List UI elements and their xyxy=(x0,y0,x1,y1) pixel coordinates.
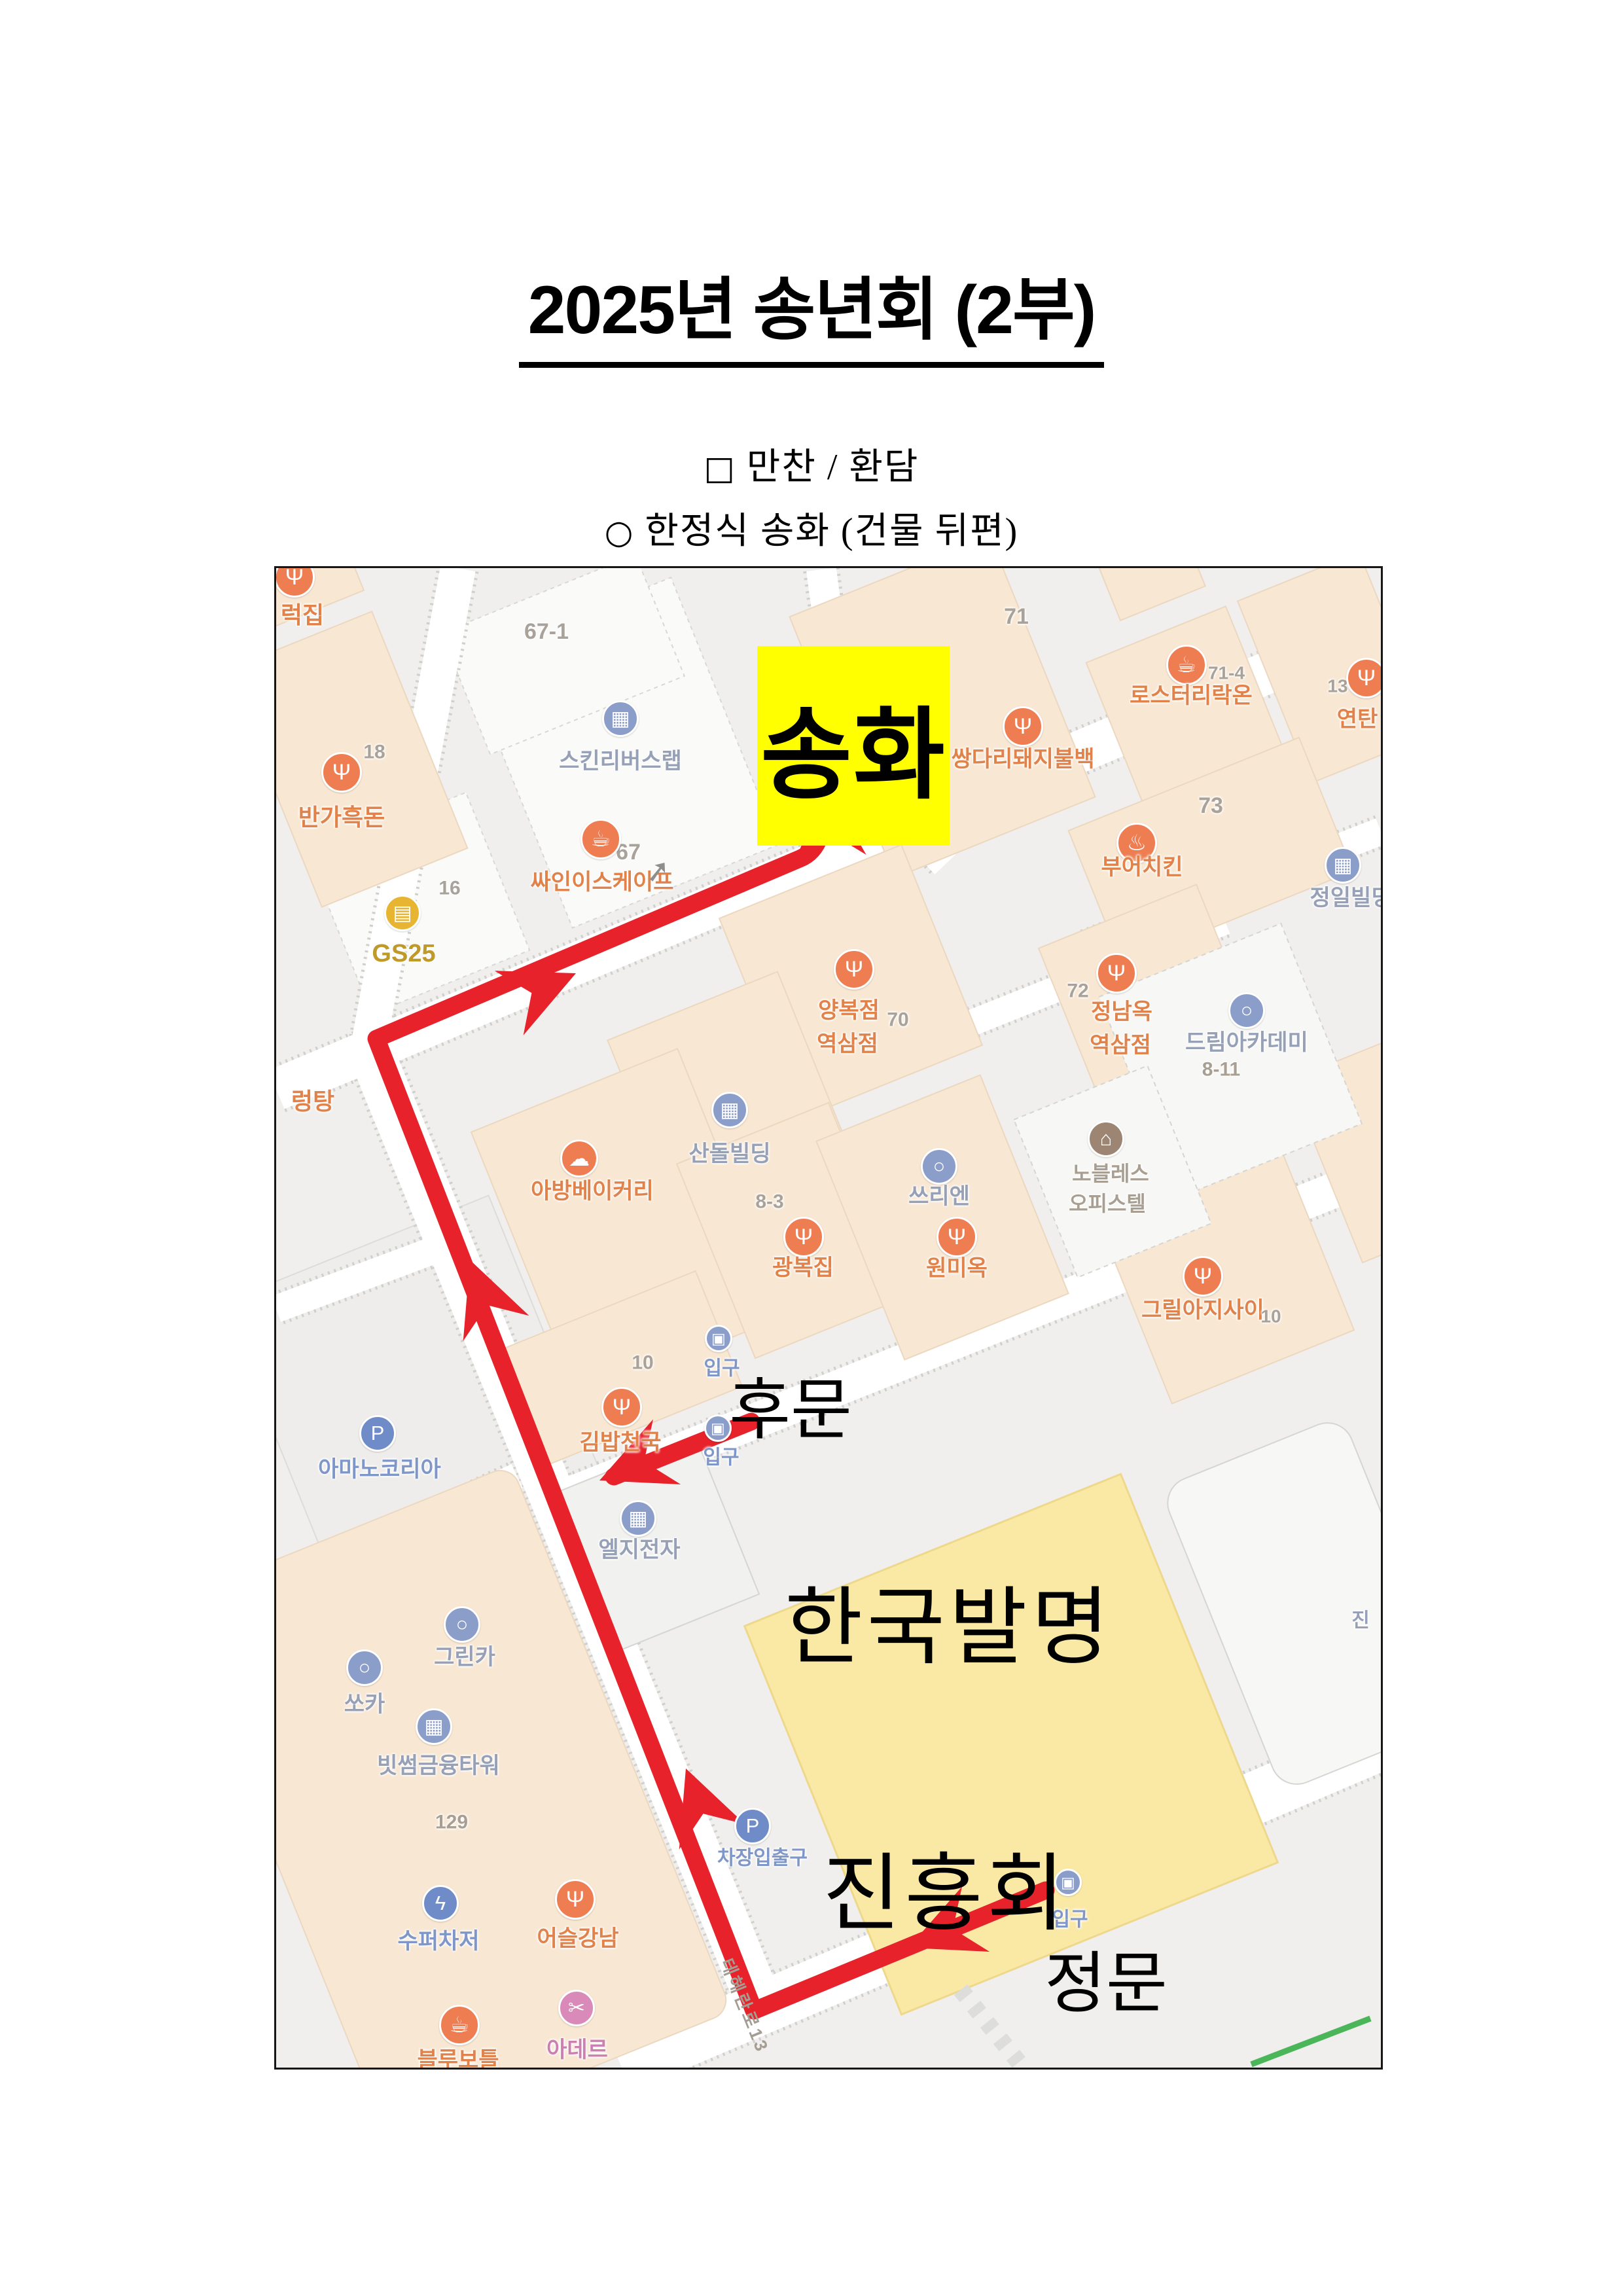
map-poi-label: 정일빌딩 xyxy=(1310,887,1383,910)
map-poi-label: 그린카 xyxy=(434,1646,495,1670)
bullet-line-dinner: □ 만찬 / 환담 xyxy=(0,437,1623,490)
district-green-line xyxy=(1251,2018,1370,2064)
map-poi-label: 로스터리락온 xyxy=(1130,685,1253,708)
map-poi-label: 67-1 xyxy=(524,620,569,644)
bldg-icon: ▦ xyxy=(416,1708,452,1745)
map-poi-label: 김밥천국 xyxy=(579,1431,661,1455)
page-header: 2025년 송년회 (2부) xyxy=(0,254,1623,368)
map-poi-label: 역삼점 xyxy=(1090,1034,1151,1058)
circle-bullet-icon: ○ xyxy=(605,513,635,551)
map-poi-label: 어슬강남 xyxy=(537,1928,618,1951)
restaurant-icon: Ψ xyxy=(834,949,874,990)
page-title: 2025년 송년회 (2부) xyxy=(519,254,1105,368)
map-poi-label: 양복점 xyxy=(818,999,880,1023)
map-poi-label: 연탄 xyxy=(1337,708,1378,732)
basket-icon: ▤ xyxy=(384,895,421,931)
door-icon: ▣ xyxy=(705,1325,732,1352)
map-poi-label: 13 xyxy=(1327,676,1347,695)
map-poi-label: 반가흑돈 xyxy=(298,805,385,830)
map-poi-label: 블루보틀 xyxy=(417,2049,499,2070)
cloud-icon: ☁ xyxy=(560,1139,598,1177)
map-poi-label: 부어치킨 xyxy=(1101,856,1183,880)
restaurant-icon: Ψ xyxy=(936,1217,977,1257)
cafe-icon: ☕ xyxy=(580,819,621,859)
map-poi-label: 아데르 xyxy=(546,2039,608,2062)
map-poi-label: 71-4 xyxy=(1208,663,1245,682)
restaurant-icon: Ψ xyxy=(1183,1256,1223,1297)
bldg-icon: ▦ xyxy=(1325,847,1361,884)
destination-highlight-box: 송화 xyxy=(757,646,950,846)
donut-icon: ○ xyxy=(1228,992,1265,1029)
scissors-icon: ✂ xyxy=(558,1990,595,2026)
map-poi-label: 산돌빌딩 xyxy=(688,1143,770,1166)
map-poi-label: 쌍다리돼지불백 xyxy=(952,748,1095,772)
map-poi-label: 역삼점 xyxy=(817,1033,878,1056)
map-poi-label: 70 xyxy=(887,1009,908,1030)
door-icon: ▣ xyxy=(704,1414,732,1442)
cafe-icon: ☕ xyxy=(1166,645,1207,685)
map-poi-label: 그릴아지사이 xyxy=(1141,1299,1264,1323)
map-poi-label: 정남옥 xyxy=(1091,1001,1152,1024)
donut-icon: ○ xyxy=(346,1649,383,1686)
map-poi-label: 73 xyxy=(1198,795,1223,818)
map-poi-label: 71 xyxy=(1004,605,1029,629)
map-poi-label: 드림아카데미 xyxy=(1185,1031,1308,1055)
route-map-image: Ψ럭집67-1▦스킨리버스랩18Ψ반가흑돈6771Ψ쌍다리돼지불백☕로스터리락온… xyxy=(274,566,1383,2070)
destination-label: 송화 xyxy=(760,674,946,818)
bullet-line-restaurant: ○ 한정식 송화 (건물 뒤편) xyxy=(0,501,1623,554)
parking-icon: P xyxy=(359,1415,396,1452)
donut-icon: ○ xyxy=(444,1606,480,1643)
square-bullet-icon: □ xyxy=(704,449,736,487)
map-poi-label: 노블레스 xyxy=(1072,1163,1149,1185)
map-poi-label: 오피스텔 xyxy=(1069,1193,1146,1215)
kipa-building-label-line2: 진흥회 xyxy=(823,1825,1069,1948)
map-poi-label: 18 xyxy=(363,742,385,762)
map-poi-label: 아방베이커리 xyxy=(531,1180,654,1204)
cafe-icon: ☕ xyxy=(439,2005,480,2045)
map-poi-label: 8-3 xyxy=(755,1191,783,1212)
map-poi-label: GS25 xyxy=(372,941,435,967)
map-poi-label: 10 xyxy=(1260,1306,1281,1325)
restaurant-icon: Ψ xyxy=(1003,706,1043,747)
map-poi-label: 럭집 xyxy=(281,603,324,628)
map-poi-label: 72 xyxy=(1067,980,1088,1001)
map-poi-label: 엘지전자 xyxy=(598,1539,680,1562)
restaurant-icon: Ψ xyxy=(1346,658,1383,698)
restaurant-icon: Ψ xyxy=(1096,953,1137,994)
bullet-text: 한정식 송화 (건물 뒤편) xyxy=(645,511,1018,552)
restaurant-icon: Ψ xyxy=(601,1387,642,1427)
map-poi-label: 10 xyxy=(632,1352,653,1373)
crosswalk-dashes xyxy=(961,1990,1021,2065)
restaurant-icon: Ψ xyxy=(555,1879,596,1920)
map-poi-label: 광복집 xyxy=(772,1257,834,1280)
map-poi-label: 렁탕 xyxy=(291,1089,334,1114)
map-poi-label: 쓰리엔 xyxy=(908,1185,970,1209)
parking-icon: P xyxy=(734,1808,771,1844)
map-poi-label: 쏘카 xyxy=(344,1693,385,1717)
map-poi-label: 진 xyxy=(1351,1610,1370,1631)
restaurant-icon: Ψ xyxy=(321,752,362,793)
map-poi-label: 스킨리버스랩 xyxy=(559,750,682,774)
map-poi-label: 129 xyxy=(435,1812,468,1833)
bldg-icon: ▦ xyxy=(620,1500,656,1537)
house-icon: ⌂ xyxy=(1088,1121,1124,1157)
bldg-icon: ▦ xyxy=(602,700,639,737)
restaurant-icon: Ψ xyxy=(783,1217,824,1257)
donut-icon: ○ xyxy=(921,1148,957,1185)
power-icon: ϟ xyxy=(422,1885,459,1922)
map-poi-label: 8-11 xyxy=(1202,1059,1240,1080)
map-poi-label: 차장입출구 xyxy=(717,1848,808,1869)
bldg-icon: ▦ xyxy=(711,1092,748,1128)
map-poi-label: 16 xyxy=(438,878,460,899)
map-poi-label: 아마노코리아 xyxy=(318,1458,441,1482)
bullet-text: 만찬 / 환담 xyxy=(747,447,919,488)
back-gate-label: 후문 xyxy=(729,1357,852,1453)
map-poi-label: 수퍼차저 xyxy=(397,1930,479,1954)
document-page: { "page": { "title": "2025년 송년회 (2부)", "… xyxy=(0,0,1623,2296)
map-poi-label: 원미옥 xyxy=(926,1257,988,1281)
map-poi-label: 빗썸금융타워 xyxy=(377,1755,500,1778)
kipa-building-label-line1: 한국발명 xyxy=(785,1558,1113,1681)
road-direction-arrow-icon: ➚ xyxy=(643,852,673,890)
